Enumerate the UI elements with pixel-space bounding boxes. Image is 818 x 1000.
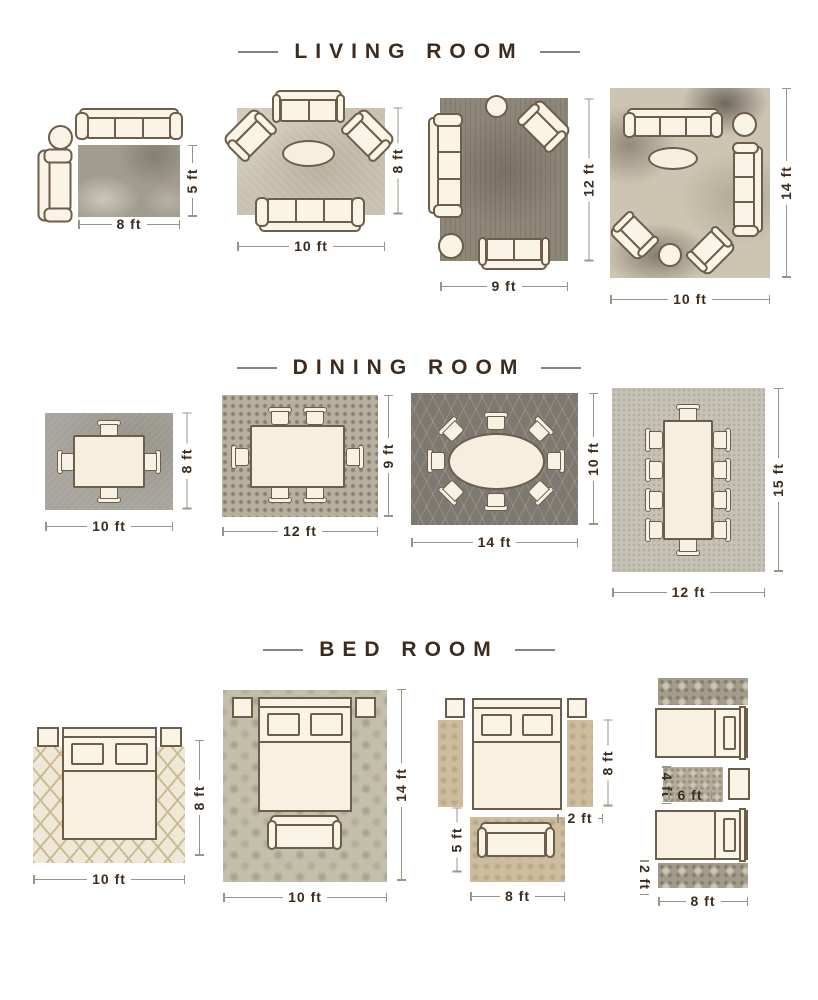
dining-chair xyxy=(713,430,731,450)
sofa xyxy=(428,113,463,218)
dimension-label: 14 ft xyxy=(779,166,793,200)
rug-width-dimension: 10 ft xyxy=(45,517,173,535)
dimension-line xyxy=(192,145,193,164)
dining-chair xyxy=(486,493,506,511)
dimension-line xyxy=(199,816,200,857)
dimension-label: 5 ft xyxy=(450,828,464,853)
headboard xyxy=(64,729,155,738)
bench-seat xyxy=(275,824,334,849)
bed-room-title: BED ROOM xyxy=(319,638,499,662)
accent-rug-width-dimension: 8 ft xyxy=(470,887,565,905)
sofa-cushion xyxy=(323,198,353,223)
sofa-seats xyxy=(437,125,462,207)
chair-seat xyxy=(649,461,663,479)
dimension-line xyxy=(223,897,283,898)
sofa-cushion xyxy=(685,116,712,137)
section-title-bed-room: BED ROOM xyxy=(0,638,818,662)
dining-chair xyxy=(645,460,663,480)
dimension-line xyxy=(667,766,668,768)
bed xyxy=(472,698,562,810)
dimension-line xyxy=(131,526,173,527)
chair-seat xyxy=(487,416,505,430)
bed-blanket xyxy=(657,710,716,756)
pillow xyxy=(310,713,342,735)
nightstand xyxy=(37,727,59,747)
sofa-seats xyxy=(87,117,171,139)
dining-room-layout-2: 12 ft 9 ft xyxy=(218,392,398,542)
sofa-cushion xyxy=(733,201,755,227)
dimension-label: 10 ft xyxy=(673,292,707,306)
dimension-line xyxy=(607,781,608,807)
round-side-table xyxy=(485,95,508,118)
dimension-label: 10 ft xyxy=(288,890,322,904)
dimension-line xyxy=(222,531,278,532)
dimension-line xyxy=(327,897,387,898)
chair-seat xyxy=(547,452,561,470)
sofa-seats xyxy=(280,99,337,122)
runner-length-dimension: 8 ft xyxy=(658,892,748,910)
sofa-cushion xyxy=(87,117,116,139)
section-title-dining-room: DINING ROOM xyxy=(0,356,818,380)
bed-room-layout-1: 10 ft 8 ft xyxy=(25,690,215,890)
accent-rug-height-dimension: 5 ft xyxy=(448,808,466,873)
sofa-cushion xyxy=(437,151,462,180)
nightstand xyxy=(232,697,253,718)
dining-table xyxy=(663,420,713,540)
dimension-line xyxy=(237,246,289,247)
round-side-table xyxy=(732,112,757,137)
dining-room-layout-3: 14 ft 10 ft xyxy=(408,390,598,540)
rug-width-dimension: 10 ft xyxy=(610,290,770,308)
chair-seat xyxy=(649,521,663,539)
small-rug-width-dimension: 6 ft xyxy=(668,786,712,804)
title-dash-icon xyxy=(540,51,580,53)
twin-bed xyxy=(655,810,748,860)
chair-seat xyxy=(143,453,157,471)
sofa-cushion xyxy=(486,238,515,261)
dining-chair xyxy=(231,447,249,467)
rug-width-dimension: 9 ft xyxy=(440,277,568,295)
dimension-label: 14 ft xyxy=(478,535,512,549)
dining-chair xyxy=(305,407,325,425)
dining-chair xyxy=(645,520,663,540)
dimension-line xyxy=(131,879,185,880)
sofa-seats xyxy=(733,152,755,226)
rug-width-dimension: 12 ft xyxy=(612,583,765,601)
sofa-cushion xyxy=(634,116,661,137)
loveseat xyxy=(272,90,345,123)
oval-coffee-table xyxy=(282,140,335,167)
sofa-cushion xyxy=(114,117,143,139)
rug-height-dimension: 8 ft xyxy=(190,740,208,856)
pillow xyxy=(115,743,148,765)
dimension-label: 8 ft xyxy=(192,786,206,811)
dimension-label: 8 ft xyxy=(601,751,615,776)
dimension-label: 8 ft xyxy=(180,449,194,474)
bed-blanket xyxy=(64,770,155,838)
dimension-label: 8 ft xyxy=(391,149,405,174)
dining-table xyxy=(73,435,145,488)
sofa xyxy=(732,142,763,237)
pillow xyxy=(723,716,736,749)
oval-coffee-table xyxy=(648,147,698,170)
sofa xyxy=(255,197,365,232)
dimension-line xyxy=(588,98,589,158)
bench-seat xyxy=(486,832,547,857)
pillow xyxy=(723,818,736,851)
dimension-line xyxy=(610,299,668,300)
bed xyxy=(258,697,352,812)
bed-room-layout-4: 4 ft 6 ft 2 ft 8 ft xyxy=(640,672,818,910)
living-room-layout-2: 10 ft 8 ft xyxy=(220,85,410,250)
dimension-label: 12 ft xyxy=(283,524,317,538)
dining-chair xyxy=(713,520,731,540)
chair-seat xyxy=(713,431,727,449)
dimension-line xyxy=(612,592,667,593)
dining-chair xyxy=(346,447,364,467)
dimension-label: 9 ft xyxy=(381,444,395,469)
dimension-line xyxy=(186,479,187,510)
dining-chair xyxy=(678,538,698,556)
chair-seat xyxy=(713,491,727,509)
sofa-seats xyxy=(267,198,353,223)
nightstand xyxy=(355,697,376,718)
title-dash-icon xyxy=(541,367,581,369)
sofa-cushion xyxy=(280,99,309,122)
dining-table xyxy=(250,425,345,488)
dimension-line xyxy=(397,179,398,215)
dimension-line xyxy=(516,542,578,543)
headboard xyxy=(474,700,560,709)
sofa-cushion xyxy=(308,99,337,122)
dimension-line xyxy=(401,689,402,763)
dimension-line xyxy=(147,224,181,225)
nightstand xyxy=(160,727,182,747)
rug xyxy=(78,145,180,217)
sofa-seats xyxy=(486,238,542,261)
dimension-line xyxy=(710,592,765,593)
dimension-label: 10 ft xyxy=(294,239,328,253)
dimension-label: 10 ft xyxy=(92,872,126,886)
dining-chair xyxy=(713,490,731,510)
dimension-line xyxy=(588,202,589,262)
bench xyxy=(267,815,342,850)
title-dash-icon xyxy=(515,649,555,651)
dimension-line xyxy=(456,858,457,873)
rug-height-dimension: 8 ft xyxy=(389,108,407,215)
dimension-line xyxy=(598,818,604,819)
runner-width-dimension: 2 ft xyxy=(557,809,603,827)
sofa-cushion xyxy=(267,198,297,223)
dimension-label: 9 ft xyxy=(492,279,517,293)
dimension-line xyxy=(778,388,779,458)
dimension-line xyxy=(322,531,378,532)
sofa xyxy=(623,108,723,138)
living-room-layout-1: 8 ft 5 ft xyxy=(25,90,210,240)
pillow xyxy=(267,713,299,735)
armchair xyxy=(38,149,73,223)
dimension-label: 14 ft xyxy=(394,768,408,802)
dimension-line xyxy=(593,481,594,525)
round-side-table xyxy=(48,125,73,150)
dimension-line xyxy=(397,108,398,144)
dimension-line xyxy=(721,901,749,902)
dimension-label: 12 ft xyxy=(582,163,596,197)
rug-height-dimension: 5 ft xyxy=(183,145,201,217)
chair-seat xyxy=(487,493,505,507)
title-dash-icon xyxy=(263,649,303,651)
nightstand xyxy=(567,698,587,718)
title-dash-icon xyxy=(237,367,277,369)
rug-width-dimension: 10 ft xyxy=(33,870,185,888)
bench-cushion xyxy=(275,824,334,849)
dimension-line xyxy=(199,740,200,781)
dining-chair xyxy=(547,451,565,471)
rug-width-dimension: 10 ft xyxy=(237,237,385,255)
pillow xyxy=(522,714,553,736)
bench-cushion xyxy=(486,832,547,857)
chair-seat xyxy=(431,452,445,470)
chair-seat xyxy=(271,411,289,425)
sofa xyxy=(75,108,183,140)
dimension-line xyxy=(33,879,87,880)
dining-room-title: DINING ROOM xyxy=(293,356,526,380)
dimension-line xyxy=(186,413,187,444)
bed-blanket xyxy=(657,812,716,858)
dining-chair xyxy=(486,412,506,430)
dining-chair xyxy=(270,407,290,425)
loveseat xyxy=(478,237,550,270)
dimension-line xyxy=(778,502,779,572)
rug-width-dimension: 14 ft xyxy=(411,533,578,551)
rug-width-dimension: 8 ft xyxy=(78,215,180,233)
dimension-line xyxy=(535,896,565,897)
armchair-arm xyxy=(43,208,72,223)
dimension-line xyxy=(658,901,686,902)
dimension-line xyxy=(401,807,402,881)
dimension-label: 12 ft xyxy=(672,585,706,599)
dimension-line xyxy=(668,795,673,796)
chair-seat xyxy=(306,411,324,425)
sofa-cushion xyxy=(295,198,325,223)
sofa-cushion xyxy=(513,238,542,261)
rug-width-dimension: 12 ft xyxy=(222,522,378,540)
dimension-label: 8 ft xyxy=(117,217,142,231)
armchair-seat xyxy=(48,161,71,210)
dimension-label: 10 ft xyxy=(92,519,126,533)
headboard xyxy=(260,699,350,708)
bed-blanket xyxy=(260,741,350,810)
runner-width-dimension: 2 ft xyxy=(636,860,654,890)
chair-seat xyxy=(649,491,663,509)
dimension-label: 6 ft xyxy=(678,788,703,802)
bed-room-layout-2: 10 ft 14 ft xyxy=(218,688,413,903)
dimension-label: 15 ft xyxy=(771,463,785,497)
bed xyxy=(62,727,157,840)
chair-seat xyxy=(713,521,727,539)
round-side-table xyxy=(438,233,464,259)
dining-room-layout-4: 12 ft 15 ft xyxy=(610,388,795,598)
runner-rug xyxy=(658,678,748,705)
sofa-cushion xyxy=(437,125,462,154)
dimension-line xyxy=(45,526,87,527)
chair-seat xyxy=(346,448,360,466)
dining-chair xyxy=(645,490,663,510)
dining-chair xyxy=(143,452,161,472)
dimension-line xyxy=(607,720,608,746)
section-title-living-room: LIVING ROOM xyxy=(0,40,818,64)
pillow xyxy=(71,743,104,765)
dimension-line xyxy=(388,474,389,518)
dimension-line xyxy=(522,286,569,287)
bed-blanket xyxy=(474,741,560,808)
dimension-line xyxy=(557,818,563,819)
dimension-line xyxy=(470,896,500,897)
dimension-line xyxy=(593,393,594,437)
nightstand xyxy=(728,768,750,800)
rug-size-guide: LIVING ROOM 8 ft 5 ft xyxy=(0,0,818,1000)
title-dash-icon xyxy=(238,51,278,53)
dimension-label: 2 ft xyxy=(638,865,652,890)
dining-chair xyxy=(427,451,445,471)
chair-seat xyxy=(649,431,663,449)
dining-chair xyxy=(645,430,663,450)
bed-room-layout-3: 8 ft 2 ft 5 ft 8 ft xyxy=(428,690,613,900)
dimension-line xyxy=(786,88,787,161)
chair-seat xyxy=(679,538,697,552)
round-side-table xyxy=(658,243,682,267)
sofa-seats xyxy=(634,116,712,137)
living-room-layout-4: 10 ft 14 ft xyxy=(605,85,805,300)
dimension-label: 5 ft xyxy=(185,169,199,194)
sofa-cushion xyxy=(142,117,171,139)
rug-width-dimension: 10 ft xyxy=(223,888,387,906)
dimension-line xyxy=(192,199,193,218)
pillow xyxy=(481,714,512,736)
dining-room-layout-1: 10 ft 8 ft xyxy=(40,400,200,535)
chair-seat xyxy=(235,448,249,466)
dimension-label: 8 ft xyxy=(691,894,716,908)
dining-chair xyxy=(713,460,731,480)
headboard xyxy=(739,808,746,862)
dimension-line xyxy=(456,808,457,823)
rug-height-dimension: 9 ft xyxy=(379,395,397,517)
living-room-layout-3: 9 ft 12 ft xyxy=(425,85,600,285)
dimension-line xyxy=(786,205,787,278)
rug-height-dimension: 8 ft xyxy=(178,413,196,510)
dimension-line xyxy=(333,246,385,247)
sofa-cushion xyxy=(659,116,686,137)
rug-height-dimension: 15 ft xyxy=(769,388,787,572)
dimension-line xyxy=(712,299,770,300)
runner-rug xyxy=(567,720,593,807)
dimension-label: 8 ft xyxy=(505,889,530,903)
headboard xyxy=(739,706,746,760)
oval-dining-table xyxy=(448,433,545,490)
living-room-title: LIVING ROOM xyxy=(294,40,523,64)
runner-height-dimension: 8 ft xyxy=(599,720,617,807)
rug-height-dimension: 14 ft xyxy=(777,88,795,278)
sofa-cushion xyxy=(733,152,755,178)
dimension-line xyxy=(388,395,389,439)
sofa-cushion xyxy=(733,176,755,202)
dimension-label: 10 ft xyxy=(586,442,600,476)
sofa-cushion xyxy=(437,178,462,207)
twin-bed xyxy=(655,708,748,758)
dimension-line xyxy=(78,224,112,225)
runner-rug xyxy=(658,863,748,888)
rug-height-dimension: 10 ft xyxy=(584,393,602,525)
dimension-line xyxy=(411,542,473,543)
rug-height-dimension: 14 ft xyxy=(392,689,410,881)
chair-seat xyxy=(713,461,727,479)
bench xyxy=(477,822,555,858)
dimension-line xyxy=(708,795,713,796)
dimension-label: 2 ft xyxy=(568,811,593,825)
dimension-line xyxy=(440,286,487,287)
rug-height-dimension: 12 ft xyxy=(580,99,598,262)
nightstand xyxy=(445,698,465,718)
runner-rug xyxy=(438,720,463,807)
